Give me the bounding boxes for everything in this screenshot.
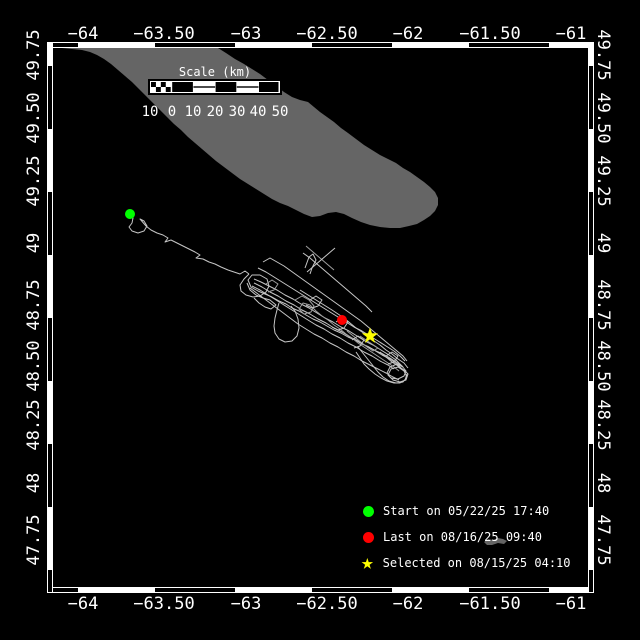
scale-bar-check [151, 82, 156, 87]
last-marker [337, 315, 347, 325]
scale-bar-label: 30 [229, 104, 246, 120]
legend-label: Selected on 08/15/25 04:10 [383, 556, 571, 570]
scale-bar-check [166, 87, 171, 92]
scale-bar-label: 50 [272, 104, 289, 120]
scale-bar-cell [172, 82, 193, 92]
start-marker [125, 209, 135, 219]
scale-bar-midline [237, 86, 259, 87]
scale-bar-label: 20 [207, 104, 224, 120]
scale-bar-label: 10 [185, 104, 202, 120]
scale-bar-label: 40 [250, 104, 267, 120]
scale-bar-midline [193, 86, 215, 87]
legend-item-selected: ★ Selected on 08/15/25 04:10 [361, 556, 571, 570]
legend-label: Last on 08/16/25 09:40 [383, 530, 542, 544]
scale-bar-title: Scale (km) [179, 65, 251, 79]
legend-item-last: Last on 08/16/25 09:40 [363, 530, 542, 544]
tracking-map: −64−63.50−63−62.50−62−61.50−61−64−63.50−… [0, 0, 640, 640]
track-strand [307, 248, 335, 272]
scale-bar-label: 0 [168, 104, 176, 120]
legend-item-start: Start on 05/22/25 17:40 [363, 504, 549, 518]
track-strand [240, 274, 406, 379]
track-strand [129, 214, 249, 274]
track-strand [303, 253, 372, 312]
scale-bar-check [161, 82, 166, 87]
last-marker-icon [363, 532, 374, 543]
scale-bar-check [156, 87, 161, 92]
scale-bar-label: 10 [142, 104, 159, 120]
start-marker-icon [363, 506, 374, 517]
track-strand [305, 254, 316, 274]
star-icon: ★ [361, 557, 374, 568]
track-strand [252, 286, 394, 369]
scale-bar-cell [259, 82, 279, 92]
scale-bar-cell [216, 82, 237, 92]
map-canvas: Scale (km)1001020304050 [0, 0, 640, 640]
legend-label: Start on 05/22/25 17:40 [383, 504, 549, 518]
